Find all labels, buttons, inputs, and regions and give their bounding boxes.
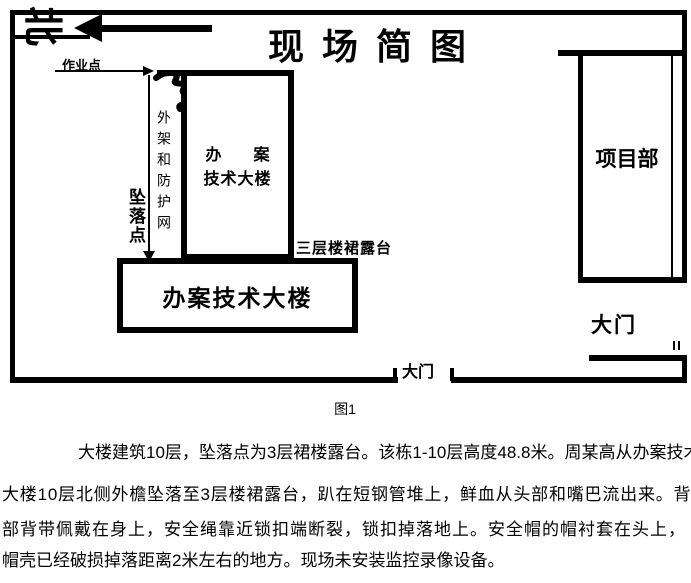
boundary-wall-left (10, 10, 15, 382)
tall-building-label-line2: 技术大楼 (203, 165, 271, 189)
work-point-leader-line (55, 70, 144, 72)
description-line-2: 大楼10层北侧外檐坠落至3层楼裙露台，趴在短钢管堆上，鲜血从头部和嘴巴流出来。背 (2, 480, 691, 505)
figure-caption: 图1 (280, 399, 410, 419)
north-arrow-head-icon (74, 14, 102, 42)
project-dept-bottom-line (578, 277, 687, 283)
main-gate-post-left (393, 368, 397, 381)
north-arrow-shaft (98, 25, 212, 32)
scanned-accident-report-page: 现场简图 北 作业点 外架和防护网 坠落点 办 案 技术大楼 三层楼裙露台 办案… (0, 0, 691, 583)
main-gate-post-right (450, 368, 454, 381)
description-line-1: 大楼建筑10层，坠落点为3层裙楼露台。该栋1-10层高度48.8米。周某高从办案… (2, 438, 691, 463)
fall-point-label: 坠落点 (123, 188, 148, 245)
podium-building-outline: 办案技术大楼 (117, 258, 358, 333)
boundary-wall-bottom-right-segment (451, 377, 687, 383)
side-gate-inner-wall-line (589, 355, 687, 361)
scaffold-net-label: 外架和防护网 (154, 110, 174, 236)
project-dept-right-edge (671, 52, 673, 277)
main-gate-label: 大门 (402, 358, 434, 382)
tall-building-outline: 办 案 技术大楼 (181, 70, 294, 260)
diagram-title: 现场简图 (268, 18, 484, 70)
side-gate-label: 大门 (591, 309, 637, 339)
project-dept-label: 项目部 (583, 143, 671, 173)
boundary-wall-bottom-left-segment (10, 377, 398, 383)
podium-building-label: 办案技术大楼 (163, 279, 313, 313)
fall-path-line (148, 75, 150, 253)
description-line-4: 帽壳已经破损掉落距离2米左右的地方。现场未安装监控录像设备。 (2, 546, 504, 571)
tall-building-label-line1: 办 案 (205, 141, 277, 165)
terrace-label: 三层楼裙露台 (296, 237, 392, 258)
side-gate-tick-mark-2 (678, 341, 680, 350)
description-line-3: 部背带佩戴在身上，安全绳靠近锁扣端断裂，锁扣掉落地上。安全帽的帽衬套在头上， (2, 515, 686, 540)
side-gate-tick-mark-1 (673, 341, 675, 350)
north-symbol: 北 (16, 0, 68, 52)
boundary-wall-top (10, 10, 687, 15)
